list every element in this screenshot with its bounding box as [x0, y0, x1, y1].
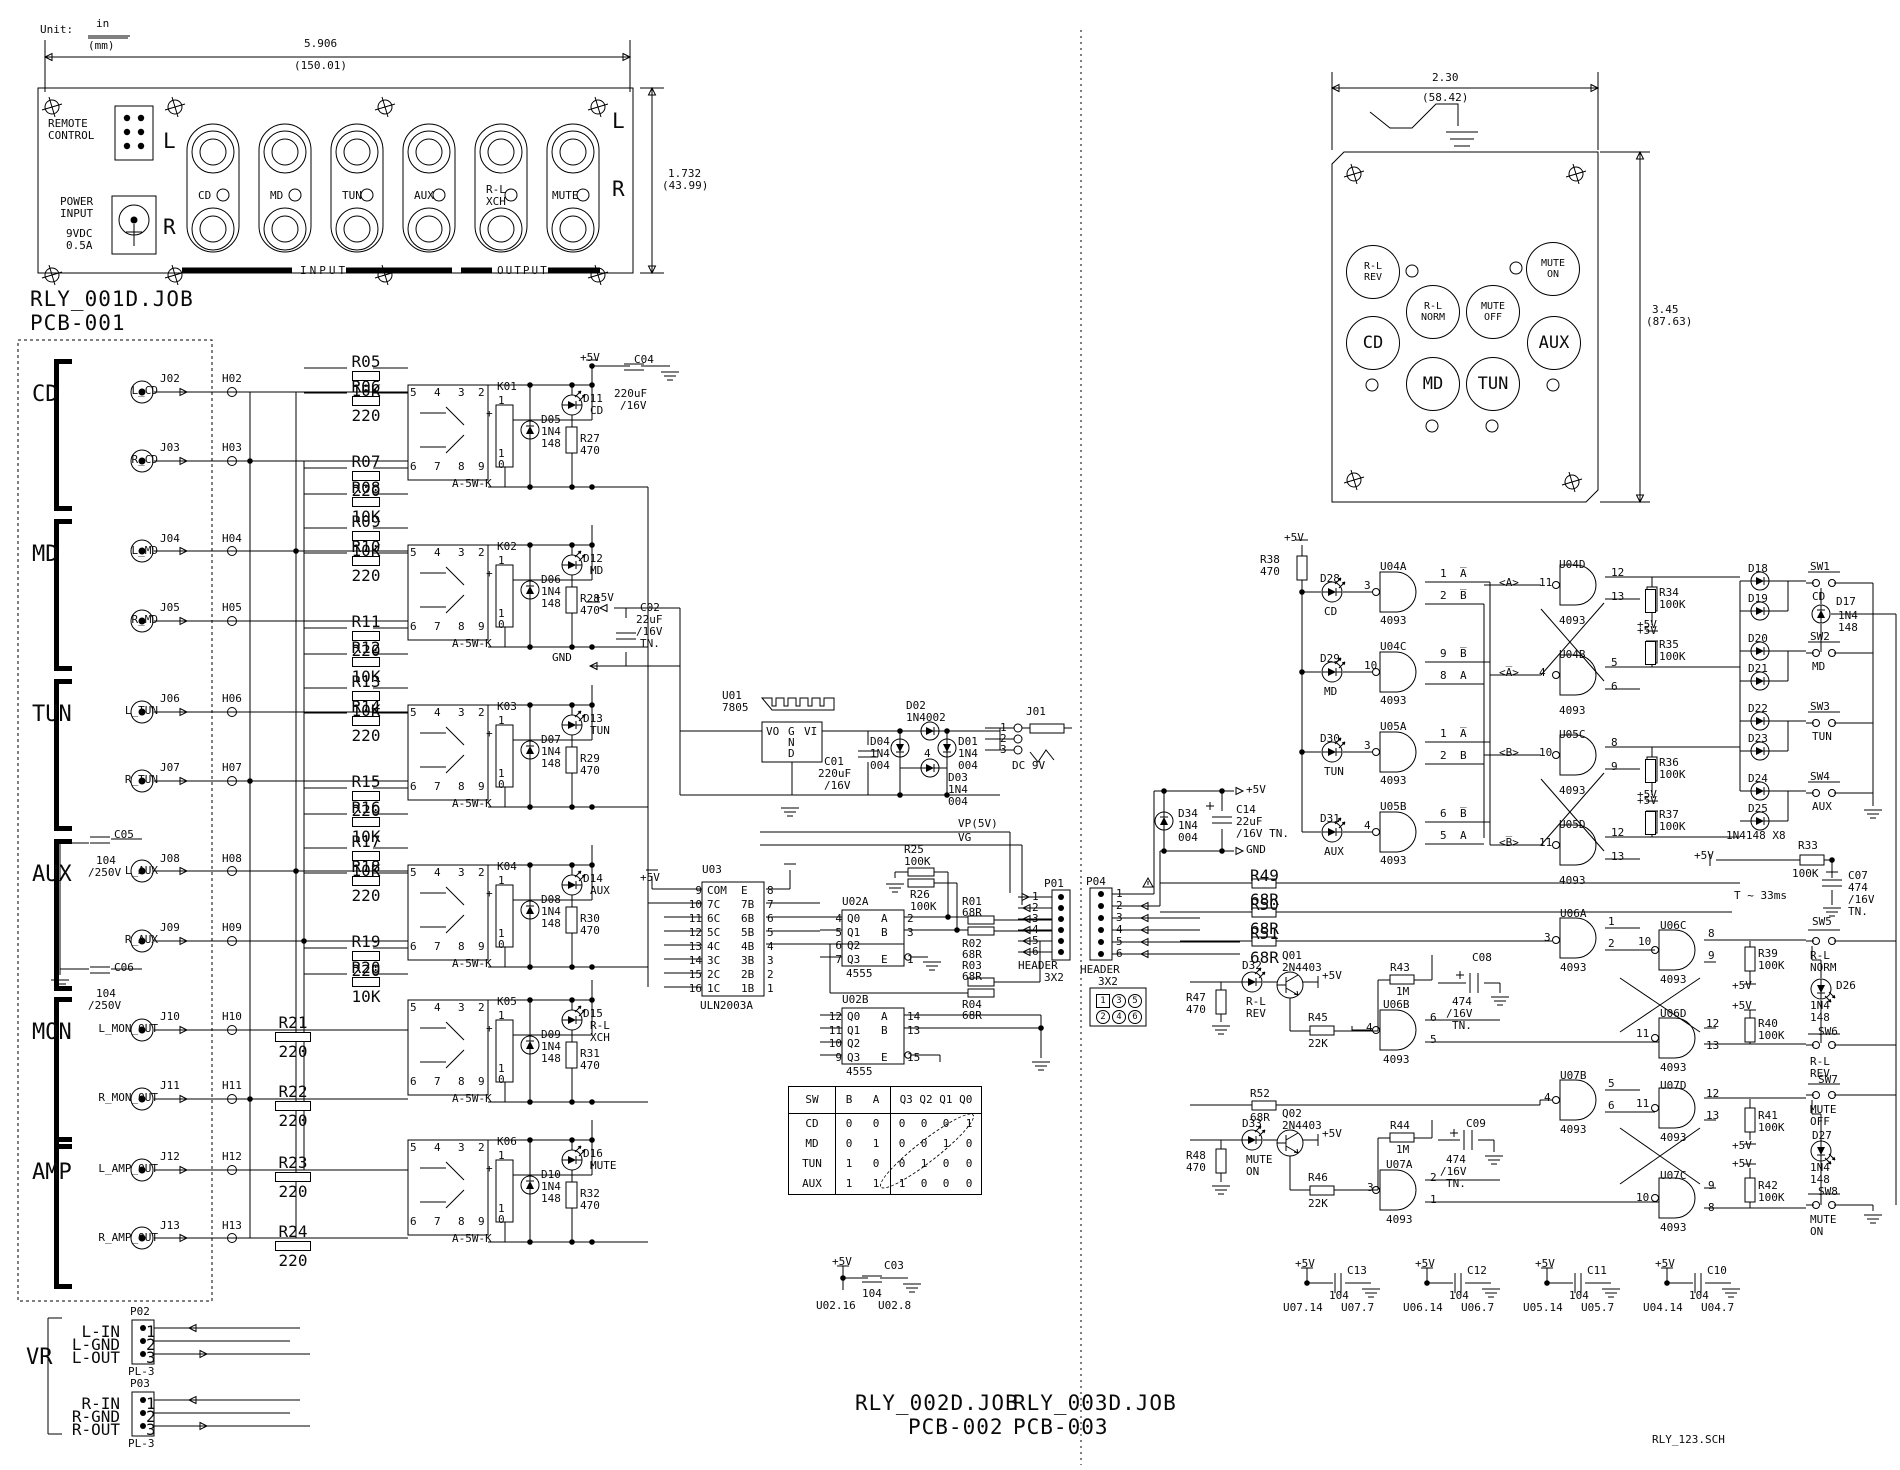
- relay-pin: 2: [478, 387, 485, 399]
- relay-pin: 2: [478, 707, 485, 719]
- jack-ref: J03: [160, 442, 180, 454]
- relay-pin: 9: [478, 781, 485, 793]
- gate-out1-pin: 12: [1611, 827, 1624, 839]
- u07d-out1: 12: [1706, 1088, 1719, 1100]
- u06a-pin: 3: [1544, 932, 1551, 944]
- relay-pin: 6: [410, 1076, 417, 1088]
- button-line-2: REV: [1364, 272, 1382, 283]
- q02-part: 2N4403: [1282, 1120, 1322, 1132]
- net-label: <A>: [1499, 577, 1519, 589]
- d04-part-2: 004: [870, 760, 890, 772]
- plus5v-label: +5V: [1415, 1258, 1435, 1270]
- u07a-part: 4093: [1386, 1214, 1413, 1226]
- gate-input-pin: 3: [1364, 580, 1371, 592]
- relay-ref: K06: [497, 1136, 517, 1148]
- relay-pin: 4: [434, 867, 441, 879]
- diode-ref: D18: [1748, 563, 1768, 575]
- remote-button: CD: [1346, 316, 1400, 370]
- bypass-cap-group: +5V C13 104 U07.14 U07.7: [1283, 1258, 1403, 1318]
- u06d-part: 4093: [1660, 1062, 1687, 1074]
- led-name: MD: [590, 565, 603, 577]
- fp-jack-label: AUX: [414, 190, 474, 202]
- pin-name-right: [881, 1037, 907, 1051]
- td-b: 0: [836, 1114, 862, 1134]
- c09-ref: C09: [1466, 1118, 1486, 1130]
- resistor-body: [1645, 641, 1656, 665]
- header-ref: H13: [222, 1220, 242, 1232]
- chip-pin-row: 10 Q2: [824, 1037, 925, 1051]
- jack-ref: J10: [160, 1011, 180, 1023]
- button-line-1: TUN: [1478, 379, 1509, 390]
- resistor-value: 470: [580, 1060, 600, 1072]
- relay-pin: 1: [498, 1010, 505, 1022]
- td-b: 0: [836, 1134, 862, 1154]
- u06d-out1: 12: [1706, 1018, 1719, 1030]
- d26-ref: D26: [1836, 980, 1856, 992]
- u06d-ref: U06D: [1660, 1008, 1687, 1020]
- pin-number-right: 4: [767, 940, 785, 954]
- td-b: 1: [836, 1154, 862, 1174]
- relay-pin: 6: [410, 781, 417, 793]
- legend-pin: 6: [1128, 1010, 1142, 1024]
- u06c-part: 4093: [1660, 974, 1687, 986]
- gate-out2-pin: 6: [1611, 681, 1618, 693]
- relay-part: A-5W-K: [452, 478, 492, 490]
- u07b-pin: 4: [1544, 1092, 1551, 1104]
- pin-number-right: 14: [907, 1010, 925, 1024]
- r04-value: 68R: [962, 1010, 982, 1022]
- legend-pin: 5: [1128, 994, 1142, 1008]
- resistor-ref: R50: [1250, 895, 1279, 914]
- u06c-out2: 9: [1708, 950, 1715, 962]
- gate-input-pin: 11: [1539, 837, 1552, 849]
- u07a-out1: 2: [1430, 1172, 1437, 1184]
- u07c-out1: 9: [1708, 1180, 1715, 1192]
- gate-part: 4093: [1559, 875, 1586, 887]
- d26-part-2: 148: [1810, 1012, 1830, 1024]
- u02a-ref: U02A: [842, 896, 869, 908]
- remote-dim-w-in: 2.30: [1432, 72, 1459, 84]
- button-line-2: OFF: [1484, 312, 1502, 323]
- gate-input-pin: 4: [1364, 820, 1371, 832]
- r33-ref: R33: [1798, 840, 1818, 852]
- u07c-part: 4093: [1660, 1222, 1687, 1234]
- header-ref: H07: [222, 762, 242, 774]
- resistor-ref: R20: [352, 958, 381, 977]
- connector-pin-row: L-GND 2: [68, 1335, 188, 1348]
- c01-rating: /16V: [824, 780, 851, 792]
- gate-out2-pin: 9: [1611, 761, 1618, 773]
- pin-number-right: [907, 1037, 925, 1051]
- chip-pin-row: 16 1C 1B 1: [684, 982, 785, 996]
- relay-pin: 6: [410, 1216, 417, 1228]
- resistor-ref: R05: [352, 352, 381, 371]
- pin-number-left: 12: [824, 1010, 842, 1024]
- led-name: AUX: [590, 885, 610, 897]
- remote-dim-h-mm: (87.63): [1646, 316, 1692, 328]
- u01-part: 7805: [722, 702, 749, 714]
- sw6-ref: SW6: [1818, 1026, 1838, 1038]
- pin-name-left: Q2: [847, 1037, 881, 1051]
- diode-ref: D21: [1748, 663, 1768, 675]
- gate-part: 4093: [1559, 705, 1586, 717]
- fp-jack-line2: XCH: [486, 195, 506, 208]
- u06d-pin: 11: [1636, 1028, 1649, 1040]
- switch-matrix-row: D22 D23 SW3 TUN: [1740, 703, 1900, 775]
- td-q0: 0: [957, 1134, 981, 1154]
- plus5v-label: +5V: [1655, 1258, 1675, 1270]
- schematic-sheet: Unit: in (mm) 5.906 (150.01) 1.732 (43.9…: [0, 0, 1900, 1470]
- jack-ref: J05: [160, 602, 180, 614]
- fp-remote-label-2: CONTROL: [48, 130, 94, 142]
- pin-name-left: Q1: [847, 1024, 881, 1038]
- relay-pin: 8: [458, 461, 465, 473]
- resistor-ref: R22: [279, 1082, 308, 1101]
- plus5v-label: +5V: [1694, 850, 1714, 862]
- bridge-count: 4: [924, 748, 931, 760]
- pin-number-right: 1: [907, 953, 925, 967]
- d33-name-2: ON: [1246, 1166, 1259, 1178]
- jack-ref: J02: [160, 373, 180, 385]
- resistor-value: 470: [580, 1200, 600, 1212]
- button-line-1: MUTE: [1541, 258, 1565, 269]
- pcb1-title: PCB-001: [30, 312, 126, 335]
- relay-pin: 0: [498, 459, 505, 471]
- pin-number-left: 10: [824, 1037, 842, 1051]
- diode-ref: D24: [1748, 773, 1768, 785]
- supply-pin-node: U04.14: [1643, 1302, 1683, 1314]
- u02a-pin-rows: 4 Q0 A 2 5 Q1 B 3 6 Q2 7 Q3 E 1: [824, 912, 925, 966]
- pin-number-right: 6: [767, 912, 785, 926]
- fp-jack-label: MD: [270, 190, 330, 202]
- switch-ref: SW4: [1810, 771, 1830, 783]
- u06c-ref: U06C: [1660, 920, 1687, 932]
- pin-name-left: 7C: [707, 898, 741, 912]
- chip-pin-row: 11 Q1 B 13: [824, 1024, 925, 1038]
- gate-part: 4093: [1380, 615, 1407, 627]
- relay-pin: 3: [458, 867, 465, 879]
- fp-dim-height-mm: (43.99): [662, 180, 708, 192]
- fp-dim-width-in: 5.906: [304, 38, 337, 50]
- r46-value: 22K: [1308, 1198, 1328, 1210]
- plus5v-label: +5V: [832, 1256, 852, 1268]
- relay-pin: 7: [434, 621, 441, 633]
- relay-pin: 3: [458, 387, 465, 399]
- u06b-part: 4093: [1383, 1054, 1410, 1066]
- diode-ref: D19: [1748, 593, 1768, 605]
- diode-part-2: 148: [541, 438, 561, 450]
- remote-button: TUN: [1466, 357, 1520, 411]
- relay-pin: 2: [478, 1142, 485, 1154]
- truth-table-header: SW B A Q3 Q2 Q1 Q0: [789, 1087, 981, 1114]
- gate-ref: U04D: [1559, 559, 1586, 571]
- gate-out1-pin: 8: [1611, 737, 1618, 749]
- r43-ref: R43: [1390, 962, 1410, 974]
- gate-input-pin: 11: [1539, 577, 1552, 589]
- r46-ref: R46: [1308, 1172, 1328, 1184]
- relay-pin: 8: [458, 941, 465, 953]
- remote-button: MUTE ON: [1526, 242, 1580, 296]
- button-line-1: R-L: [1424, 301, 1442, 312]
- resistor-ref: R16: [352, 798, 381, 817]
- pin-number-left: 9: [684, 884, 702, 898]
- resistor-ref: R11: [352, 612, 381, 631]
- resistor-body: [275, 1172, 311, 1182]
- td-a: 0: [862, 1114, 891, 1134]
- r40-value: 100K: [1758, 1030, 1785, 1042]
- cap-ref: C06: [114, 962, 134, 974]
- led-name: TUN: [1324, 766, 1344, 778]
- resistor-value: 100K: [1659, 821, 1686, 833]
- u07a-ref: U07A: [1386, 1159, 1413, 1171]
- relay-pin: 4: [434, 547, 441, 559]
- pin-number-right: [907, 939, 925, 953]
- pin-number: 3: [146, 1348, 160, 1361]
- u07c-pin: 10: [1636, 1192, 1649, 1204]
- relay-pin: 0: [498, 1074, 505, 1086]
- gate-input-pin: 3: [1364, 740, 1371, 752]
- relay-coil-plus: +: [486, 888, 493, 900]
- pin-number: 2: [146, 1407, 160, 1420]
- pin-name-left: Q1: [847, 926, 881, 940]
- relay-pin: 9: [478, 621, 485, 633]
- header-ref: H02: [222, 373, 242, 385]
- switch-ref: SW1: [1810, 561, 1830, 573]
- signal-name: L_CD: [30, 385, 158, 397]
- supply-pin-node: U05.14: [1523, 1302, 1563, 1314]
- gate-ref: U05D: [1559, 819, 1586, 831]
- u07d-pin: 11: [1636, 1098, 1649, 1110]
- gate-ref: U04B: [1559, 649, 1586, 661]
- gate-out2-pin: 8: [1440, 670, 1447, 682]
- resistor-ref: R14: [352, 697, 381, 716]
- relay-pin: 4: [434, 707, 441, 719]
- pin-name-right: A: [881, 1010, 907, 1024]
- fp-jack-line1: MD: [270, 189, 283, 202]
- ground-pin-node: U06.7: [1461, 1302, 1494, 1314]
- d32-ref: D32: [1242, 960, 1262, 972]
- j01-ref: J01: [1026, 706, 1046, 718]
- led-name-2: XCH: [590, 1032, 610, 1044]
- u01-pin-vi: VI: [804, 726, 817, 738]
- vr-group-label: VR: [26, 1344, 42, 1371]
- gate-ref: U04A: [1380, 561, 1407, 573]
- header-ref: H09: [222, 922, 242, 934]
- r45-value: 22K: [1308, 1038, 1328, 1050]
- d27-ref: D27: [1812, 1130, 1832, 1142]
- p01-part-2: 3X2: [1044, 972, 1064, 984]
- d03-part-2: 004: [948, 796, 968, 808]
- gnd-label: GND: [552, 652, 572, 664]
- diode-ref: D20: [1748, 633, 1768, 645]
- fp-left-r: R: [163, 216, 177, 239]
- fp-jack-label: CD: [198, 190, 258, 202]
- relay-pin: 0: [498, 619, 505, 631]
- u06b-out1: 6: [1430, 1012, 1437, 1024]
- u07b-out1: 5: [1608, 1078, 1615, 1090]
- cap-rating: /250V: [88, 867, 121, 879]
- pin-number-left: 7: [824, 953, 842, 967]
- cap-ref: C05: [114, 829, 134, 841]
- chip-pin-row: 7 Q3 E 1: [824, 953, 925, 967]
- switch-name: CD: [1812, 591, 1825, 603]
- gate-ref: U05C: [1559, 729, 1586, 741]
- plus5v-label: +5V: [1732, 1000, 1752, 1012]
- select-input-row: D31 AUX 4 U05B 4093 6 B̅ 5 A: [1240, 800, 1500, 880]
- connector-pin-row: R-OUT 3: [68, 1420, 188, 1433]
- r41-value: 100K: [1758, 1122, 1785, 1134]
- button-line-1: CD: [1363, 338, 1383, 349]
- jack-ref: J13: [160, 1220, 180, 1232]
- resistor-ref: R15: [352, 772, 381, 791]
- jack-ref: J09: [160, 922, 180, 934]
- resistor-ref: R13: [352, 672, 381, 691]
- pin-number: 1: [146, 1394, 160, 1407]
- button-line-1: R-L: [1364, 261, 1382, 272]
- header-ref: H12: [222, 1151, 242, 1163]
- jack-ref: J06: [160, 693, 180, 705]
- u06d-out2: 13: [1706, 1040, 1719, 1052]
- signal-name: L_TUN: [30, 705, 158, 717]
- pin-name-left: 3C: [707, 954, 741, 968]
- gate-input-pin: 4: [1539, 667, 1546, 679]
- signal-name: R_CD: [30, 454, 158, 466]
- relay-pin: 9: [478, 941, 485, 953]
- latch-gate-row: <B> 10 U05C 4093 8 9 R36 100K +5V: [1495, 735, 1745, 827]
- gate-input-pin: 10: [1364, 660, 1377, 672]
- u06b-ref: U06B: [1383, 999, 1410, 1011]
- sw7-name-2: OFF: [1810, 1116, 1830, 1128]
- gate-out2-pin: 13: [1611, 851, 1624, 863]
- resistor-ref: R07: [352, 452, 381, 471]
- td-q1: 0: [935, 1154, 957, 1174]
- relay-ref: K03: [497, 701, 517, 713]
- r33-value: 100K: [1792, 868, 1819, 880]
- truth-table-row: TUN 1 0 0 1 0 0: [789, 1154, 981, 1174]
- th-q: Q3 Q2 Q1 Q0: [891, 1087, 981, 1113]
- u07d-out2: 13: [1706, 1110, 1719, 1122]
- vp5v-label: VP(5V): [958, 818, 998, 830]
- pin-name-right: 7B: [741, 898, 767, 912]
- relay-pin: 3: [458, 1142, 465, 1154]
- resistor-value: 470: [580, 445, 600, 457]
- u06a-ref: U06A: [1560, 908, 1587, 920]
- inline-resistor: R24 220: [270, 1222, 316, 1270]
- resistor-ref: R12: [352, 638, 381, 657]
- relay-part: A-5W-K: [452, 1233, 492, 1245]
- pin-name-right: 5B: [741, 926, 767, 940]
- c03-ref: C03: [884, 1260, 904, 1272]
- pin-name-right: E: [881, 953, 907, 967]
- pin-number-right: 13: [907, 1024, 925, 1038]
- chip-pin-row: 12 Q0 A 14: [824, 1010, 925, 1024]
- pin-name-right: 6B: [741, 912, 767, 926]
- resistor-body: [352, 977, 380, 987]
- r03-value: 68R: [962, 971, 982, 983]
- relay-pin: 3: [458, 547, 465, 559]
- c09-type: TN.: [1446, 1178, 1466, 1190]
- header-ref: H04: [222, 533, 242, 545]
- fp-jack-line1: CD: [198, 189, 211, 202]
- u07b-part: 4093: [1560, 1124, 1587, 1136]
- pin-name-left: 2C: [707, 968, 741, 982]
- chip-pin-row: 15 2C 2B 2: [684, 968, 785, 982]
- fp-jack-line1: MUTE: [552, 189, 579, 202]
- relay-pin: 2: [478, 547, 485, 559]
- td-q2: 0: [913, 1174, 935, 1194]
- relay-pin: 2: [478, 1002, 485, 1014]
- resistor-body: [352, 396, 380, 406]
- relay-coil-plus: +: [486, 728, 493, 740]
- ladder-resistor: R06 220: [344, 377, 388, 425]
- relay-pin: 6: [410, 941, 417, 953]
- c08-ref: C08: [1472, 952, 1492, 964]
- resistor-value: 470: [580, 605, 600, 617]
- d34-part-2: 004: [1178, 832, 1198, 844]
- signal-name: L_AMP_OUT: [30, 1163, 158, 1175]
- supply-pin-node: U07.14: [1283, 1302, 1323, 1314]
- jack-ref: J07: [160, 762, 180, 774]
- resistor-body: [275, 1101, 311, 1111]
- pin-number-left: 9: [824, 1051, 842, 1065]
- connector-pin-row: R-GND 2: [68, 1407, 188, 1420]
- led-name: CD: [1324, 606, 1337, 618]
- led-ref: D29: [1320, 653, 1340, 665]
- relay-pin: 9: [478, 461, 485, 473]
- pin-name-right: 2B: [741, 968, 767, 982]
- inline-resistor: R22 220: [270, 1082, 316, 1130]
- p04-ref: P04: [1086, 876, 1106, 888]
- diode-ref: D23: [1748, 733, 1768, 745]
- ground-pin-node: U04.7: [1701, 1302, 1734, 1314]
- relay-pin: 0: [498, 779, 505, 791]
- r47-value: 470: [1186, 1004, 1206, 1016]
- pcb2-job-title: RLY_002D.JOB: [855, 1392, 1019, 1415]
- plus5v-label: +5V: [1637, 625, 1657, 637]
- relay-ref: K02: [497, 541, 517, 553]
- pin-name-left: Q2: [847, 939, 881, 953]
- ground-pin-node: U05.7: [1581, 1302, 1614, 1314]
- resistor-body: [352, 817, 380, 827]
- signal-name: R_AUX: [30, 934, 158, 946]
- c02-type: TN.: [640, 638, 660, 650]
- resistor-body: [275, 1241, 311, 1251]
- sw5-ref: SW5: [1812, 916, 1832, 928]
- c08-type: TN.: [1452, 1020, 1472, 1032]
- gate-out2-pin: 5: [1440, 830, 1447, 842]
- signal-name: L_MD: [30, 545, 158, 557]
- td-sw: AUX: [789, 1174, 836, 1194]
- u06b-pin: 4: [1366, 1022, 1373, 1034]
- signal-name: R_MD: [30, 614, 158, 626]
- gate-out2-net: A: [1460, 830, 1467, 842]
- pin-number: 1: [146, 1322, 160, 1335]
- pin-name-left: 1C: [707, 982, 741, 996]
- d17-ref: D17: [1836, 596, 1856, 608]
- cap-ref: C11: [1587, 1265, 1607, 1277]
- relay-pin: 1: [498, 1150, 505, 1162]
- td-sw: MD: [789, 1134, 836, 1154]
- relay-channel: K06 5 4 3 2 6 7 8 9 1 + 1 0 A-5W-K D10 1…: [340, 1130, 700, 1308]
- pin-name-left: COM: [707, 884, 741, 898]
- diode-type-note: 1N4148 X8: [1726, 830, 1786, 842]
- r52-ref: R52: [1250, 1088, 1270, 1100]
- jack-ref: J11: [160, 1080, 180, 1092]
- r45-ref: R45: [1308, 1012, 1328, 1024]
- inline-resistor: R21 220: [270, 1013, 316, 1061]
- gate-out1-pin: 1: [1440, 568, 1447, 580]
- chip-pin-row: 6 Q2: [824, 939, 925, 953]
